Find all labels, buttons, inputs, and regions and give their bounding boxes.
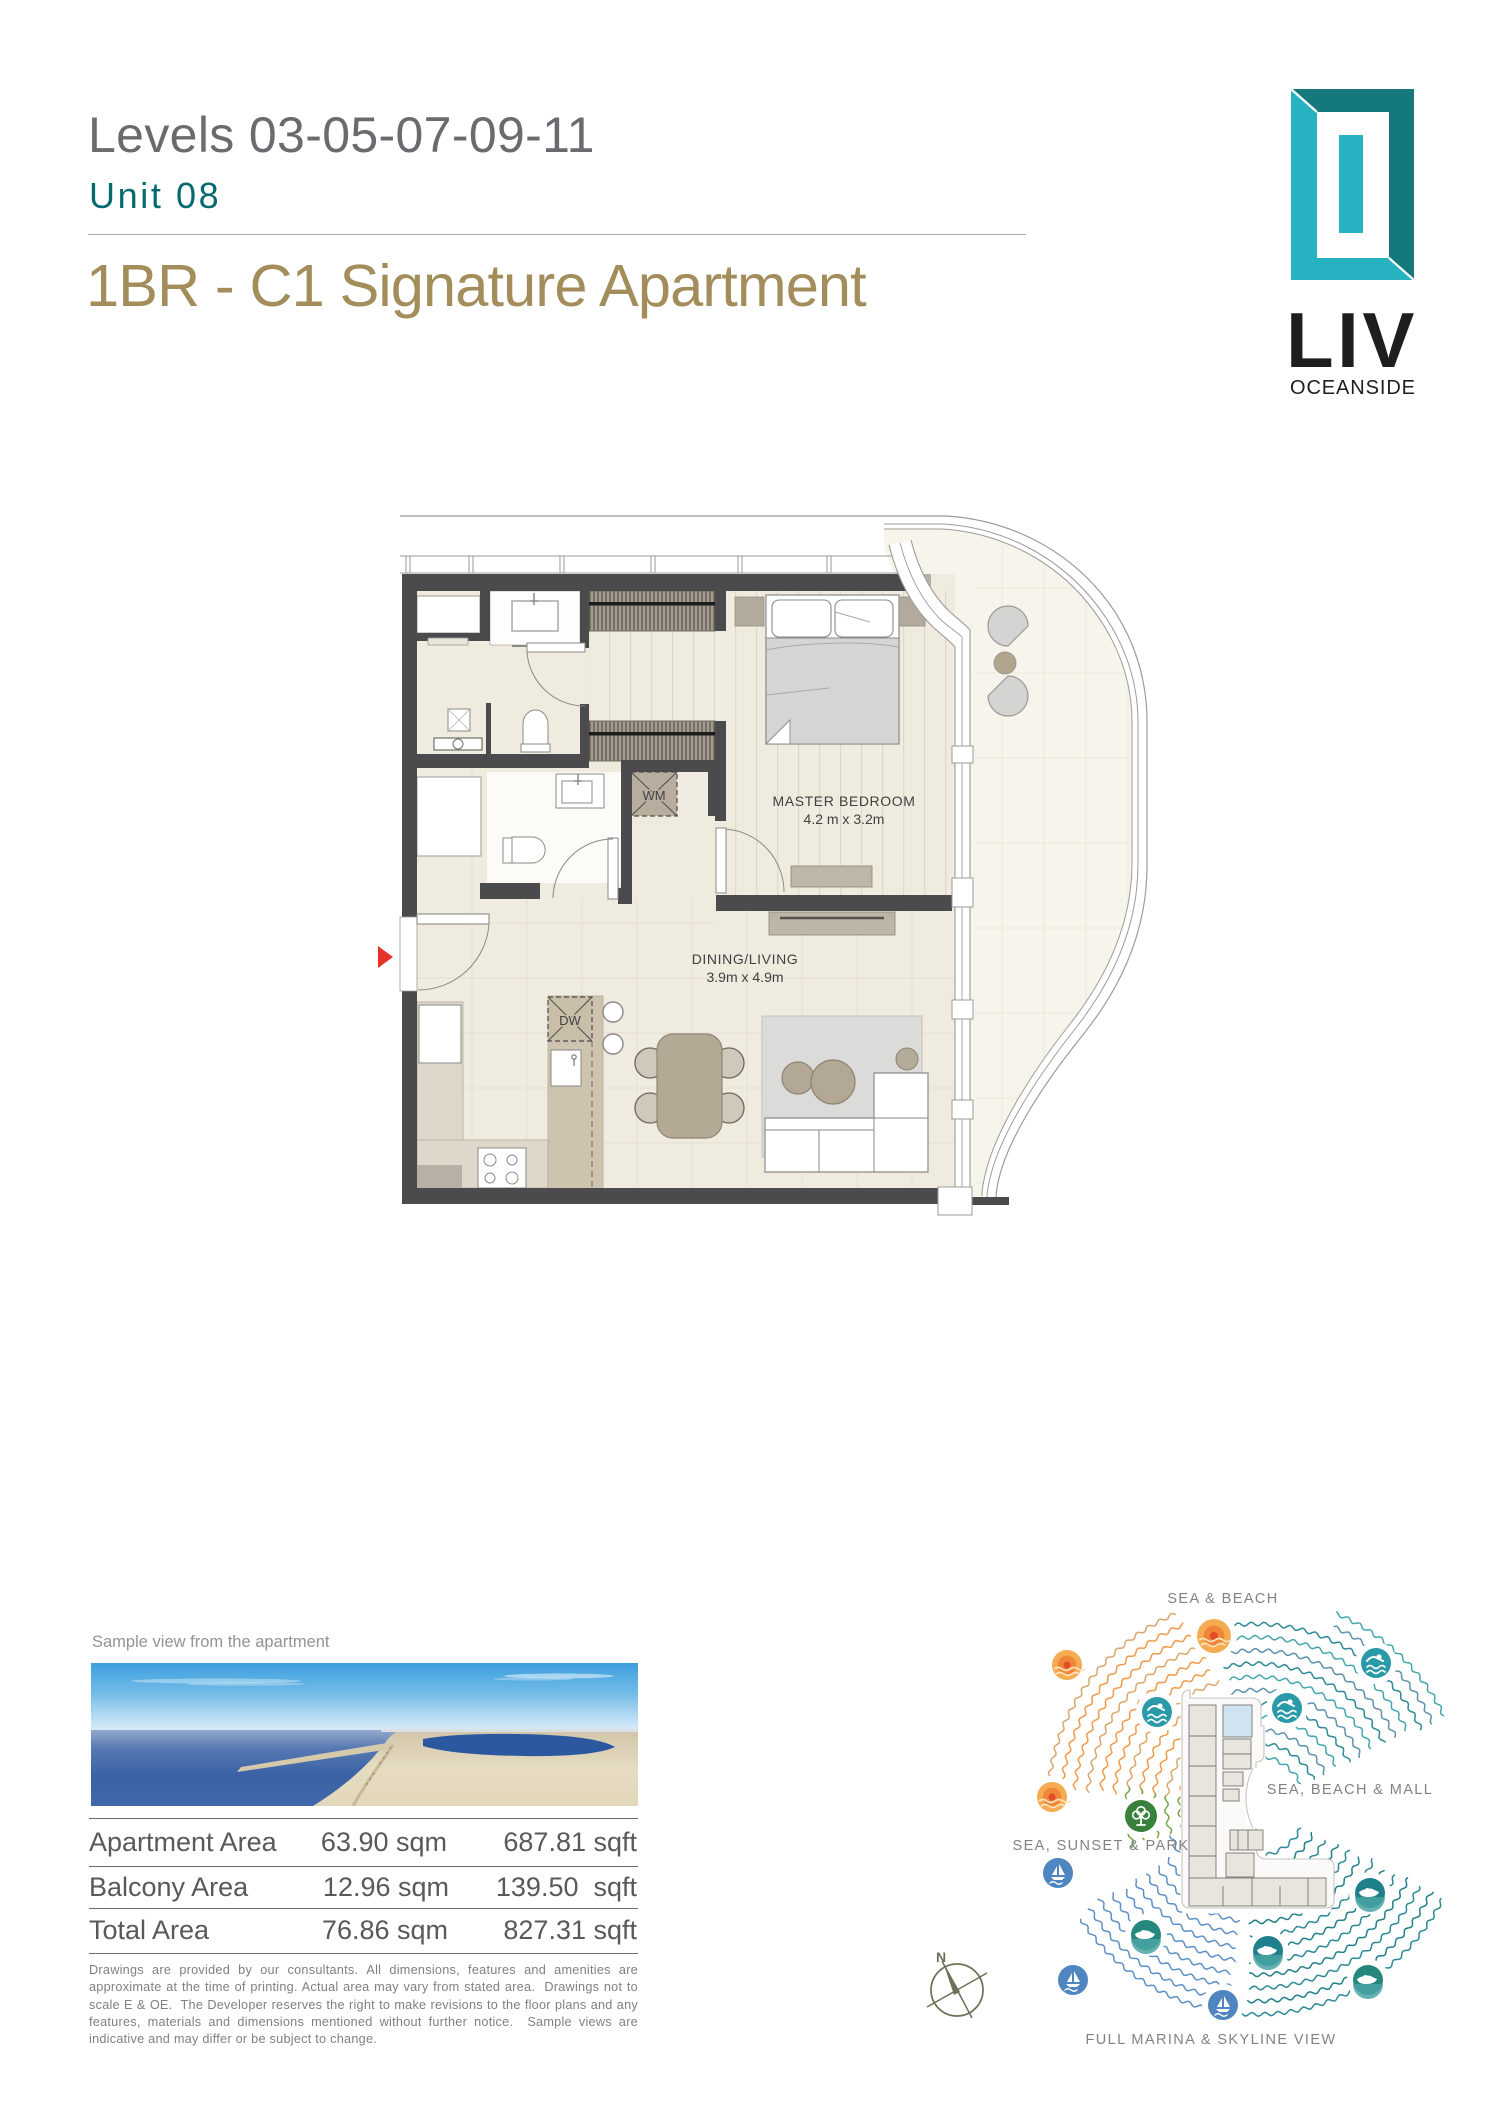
svg-text:3.9m x 4.9m: 3.9m x 4.9m — [706, 969, 783, 985]
svg-text:SEA, SUNSET & PARK: SEA, SUNSET & PARK — [1013, 1838, 1190, 1854]
svg-text:DINING/LIVING: DINING/LIVING — [692, 951, 799, 967]
svg-text:SEA, BEACH & MALL: SEA, BEACH & MALL — [1267, 1782, 1433, 1798]
svg-text:DW: DW — [559, 1013, 581, 1028]
svg-text:4.2 m x 3.2m: 4.2 m x 3.2m — [804, 811, 885, 827]
svg-text:OCEANSIDE: OCEANSIDE — [1290, 377, 1416, 399]
svg-text:SEA & BEACH: SEA & BEACH — [1167, 1591, 1278, 1607]
svg-text:MASTER BEDROOM: MASTER BEDROOM — [773, 793, 916, 809]
svg-text:WM: WM — [642, 788, 665, 803]
svg-text:LIV: LIV — [1286, 296, 1418, 384]
svg-text:N: N — [936, 1949, 946, 1965]
svg-text:FULL MARINA & SKYLINE VIEW: FULL MARINA & SKYLINE VIEW — [1085, 2032, 1336, 2048]
